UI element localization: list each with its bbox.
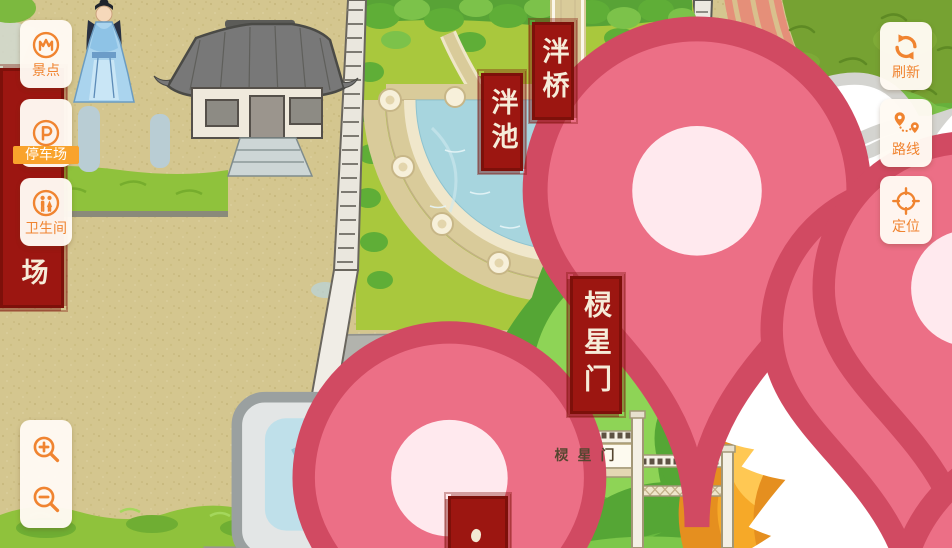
map-canvas[interactable] bbox=[0, 0, 952, 548]
panchi-banner-label: 泮池 bbox=[483, 88, 522, 156]
refresh-icon bbox=[891, 32, 921, 62]
parking-icon bbox=[31, 118, 61, 148]
scenic-spots-button[interactable]: 景点 bbox=[20, 20, 72, 88]
refresh-label: 刷新 bbox=[892, 65, 920, 81]
panqiao-banner[interactable]: 泮桥 bbox=[532, 22, 574, 120]
scenic-spot-icon bbox=[31, 30, 61, 60]
refresh-button[interactable]: 刷新 bbox=[880, 22, 932, 90]
locate-button[interactable]: 定位 bbox=[880, 176, 932, 244]
zoom-out-icon bbox=[30, 483, 62, 515]
lingxingmen-banner-label: 棂星门 bbox=[576, 290, 616, 401]
zoom-panel bbox=[20, 420, 72, 528]
panqiao-banner-label: 泮桥 bbox=[534, 37, 573, 105]
parking-area-banner-label: 场 bbox=[13, 258, 52, 285]
bottom-partial-banner[interactable] bbox=[448, 496, 508, 548]
parking-button[interactable]: 停车场 bbox=[20, 99, 72, 167]
lingxingmen-banner[interactable]: 棂星门 bbox=[570, 276, 622, 414]
restroom-button[interactable]: 卫生间 bbox=[20, 178, 72, 246]
route-icon bbox=[891, 109, 921, 139]
route-label: 路线 bbox=[892, 142, 920, 158]
zoom-in-icon bbox=[30, 433, 62, 465]
route-button[interactable]: 路线 bbox=[880, 99, 932, 167]
scenic-spots-label: 景点 bbox=[32, 63, 60, 79]
zoom-in-button[interactable] bbox=[26, 429, 66, 469]
locate-icon bbox=[891, 186, 921, 216]
restroom-icon bbox=[31, 188, 61, 218]
gate-plaque: 棂星门 bbox=[537, 444, 632, 468]
restroom-label: 卫生间 bbox=[25, 221, 67, 237]
scenic-map-app: 场 泮池 泮桥 棂星门 棂星门 景点 停车场 bbox=[0, 0, 952, 548]
panchi-banner[interactable]: 泮池 bbox=[481, 73, 523, 171]
banner-character-fragment bbox=[469, 528, 483, 543]
parking-label: 停车场 bbox=[13, 146, 79, 164]
zoom-out-button[interactable] bbox=[26, 479, 66, 519]
locate-label: 定位 bbox=[892, 219, 920, 235]
